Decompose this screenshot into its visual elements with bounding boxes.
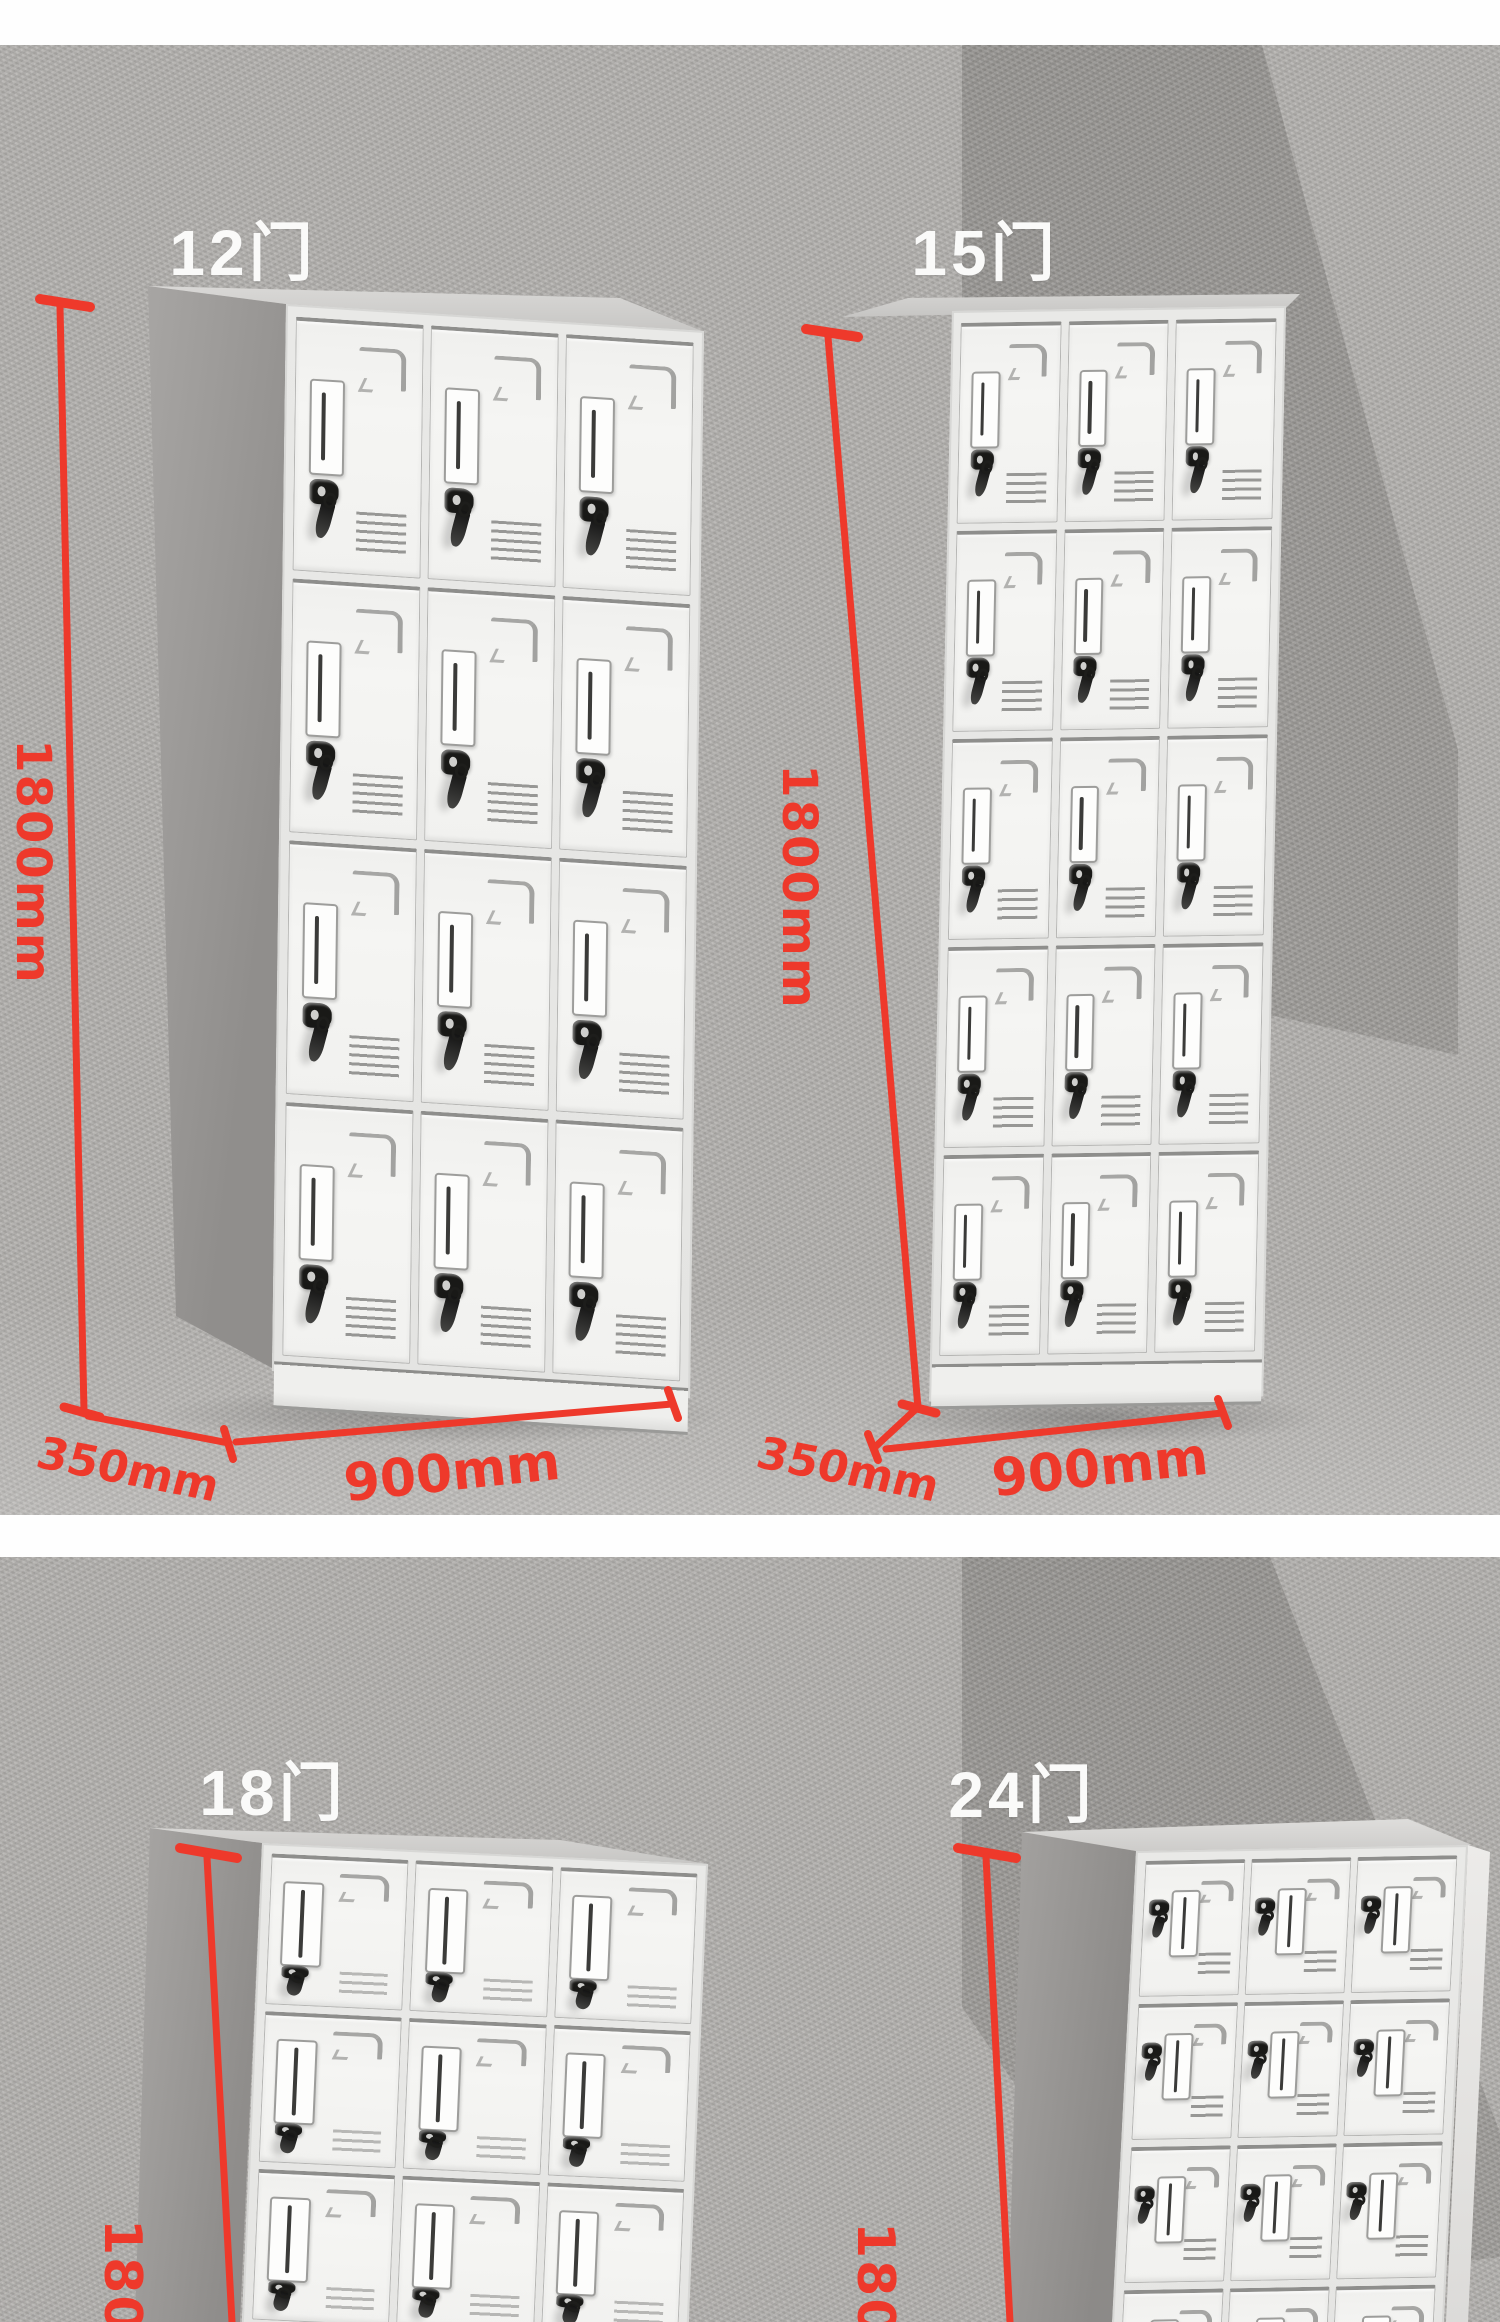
door-label-card-holder (1177, 784, 1207, 861)
door-label-card-holder (1065, 994, 1095, 1071)
door-label-card-holder (1367, 2172, 1399, 2239)
door-label-card-holder (305, 641, 342, 739)
door-label-card-holder (1374, 2029, 1406, 2096)
locker-door (952, 529, 1057, 732)
door-handle-cutout (356, 609, 403, 653)
locker12-width-label: 900mm (341, 1432, 563, 1514)
card-slot (442, 1897, 449, 1965)
card-slot (446, 1187, 451, 1255)
locker12-side-panel (148, 286, 288, 1370)
locker-door (1047, 1152, 1152, 1355)
door-handle-cutout (622, 888, 669, 932)
door-handle-cutout (494, 356, 541, 400)
door-keys (1256, 1914, 1271, 1937)
door-keys (1183, 672, 1201, 703)
door-handle-cutout (1405, 2020, 1439, 2042)
door-vents (1097, 1303, 1137, 1335)
door-vents (1002, 681, 1042, 713)
door-handle-cutout (1390, 2306, 1424, 2322)
door-label-card-holder (1168, 1200, 1198, 1277)
door-keys (1067, 1089, 1085, 1120)
door-handle-cutout (470, 2196, 521, 2224)
door-label-card-holder (1268, 2031, 1300, 2098)
door-vents (993, 1097, 1033, 1129)
locker-door (1230, 2143, 1337, 2281)
door-handle-cutout (349, 1132, 396, 1176)
door-keys (1063, 1297, 1081, 1328)
product-title-15door: 15门 (911, 202, 1058, 294)
locker-door (541, 2182, 685, 2322)
card-slot (449, 925, 454, 993)
locker15-plinth (931, 1359, 1262, 1409)
door-vents (626, 529, 677, 572)
door-handle-cutout (1009, 343, 1047, 377)
door-handle-cutout (1178, 2310, 1212, 2322)
door-label-card-holder (953, 1204, 983, 1281)
locker-door (948, 737, 1053, 940)
door-handle-cutout (1099, 1174, 1137, 1208)
card-slot (314, 916, 319, 984)
card-slot (1182, 1003, 1187, 1057)
door-label-card-holder (1359, 2316, 1391, 2322)
door-label-card-holder (1381, 1886, 1413, 1953)
door-label-card-holder (970, 371, 1000, 448)
product-title-18door: 18门 (199, 1742, 346, 1834)
door-handle-cutout (1112, 550, 1150, 584)
locker-door (1117, 2288, 1224, 2322)
middle-white-band (0, 1515, 1500, 1557)
door-keys (1143, 2059, 1158, 2082)
door-keys (575, 1041, 598, 1081)
door-vents (1110, 679, 1150, 711)
card-slot (587, 672, 592, 740)
door-vents (349, 1035, 400, 1078)
door-handle-cutout (359, 347, 406, 391)
locker-door (1343, 1998, 1450, 2136)
door-handle-cutout (1299, 2021, 1333, 2043)
door-handle-cutout (1200, 1880, 1234, 1902)
locker-door (1055, 736, 1160, 939)
door-label-card-holder (579, 396, 616, 494)
locker-door (259, 2011, 403, 2168)
door-keys (964, 883, 982, 914)
door-label-card-holder (440, 649, 477, 747)
door-label-card-holder (572, 920, 609, 1018)
door-keys (278, 2133, 298, 2155)
door-vents (487, 782, 538, 825)
door-vents (1101, 1095, 1141, 1127)
locker-door (552, 1119, 683, 1381)
door-keys (1076, 673, 1094, 704)
door-keys (1179, 880, 1197, 911)
door-keys (1249, 2057, 1264, 2080)
door-keys (959, 1091, 977, 1122)
door-vents (483, 1978, 533, 2002)
door-keys (1362, 1912, 1377, 1935)
door-vents (325, 2287, 375, 2311)
door-handle-cutout (1211, 964, 1249, 998)
card-slot (1178, 1211, 1183, 1265)
door-vents (1114, 471, 1154, 503)
card-slot (1378, 2180, 1384, 2232)
door-label-card-holder (1169, 1890, 1201, 1957)
locker-door (1351, 1855, 1458, 1993)
card-slot (1075, 1005, 1080, 1059)
locker-door (1139, 1859, 1246, 1997)
locker15-depth-label: 350mm (751, 1428, 944, 1512)
door-handle-cutout (491, 618, 538, 662)
door-keys (444, 771, 467, 811)
door-label-card-holder (568, 1182, 605, 1280)
door-label-card-holder (309, 379, 346, 477)
door-vents (1217, 677, 1257, 709)
door-vents (615, 1314, 666, 1357)
door-keys (1150, 1916, 1165, 1939)
door-keys (972, 467, 990, 498)
door-handle-cutout (1306, 1878, 1340, 1900)
card-slot (456, 401, 461, 469)
door-label-card-holder (1162, 2033, 1194, 2100)
door-handle-cutout (1005, 551, 1043, 585)
door-handle-cutout (332, 2031, 383, 2059)
door-vents (619, 1052, 670, 1095)
locker12-depth-label: 350mm (31, 1428, 224, 1512)
card-slot (1279, 2039, 1285, 2091)
card-slot (1287, 1895, 1293, 1947)
top-white-band (0, 0, 1500, 45)
card-slot (1083, 589, 1088, 643)
card-slot (1070, 1213, 1075, 1267)
door-vents (1402, 2092, 1436, 2117)
door-vents (491, 520, 542, 563)
locker-door (410, 1860, 554, 2017)
door-keys (447, 509, 470, 549)
door-label-card-holder (267, 2197, 311, 2283)
door-handle-cutout (628, 1887, 679, 1915)
door-vents (1289, 2237, 1323, 2262)
door-keys (1175, 1088, 1193, 1119)
locker-door (1245, 1857, 1352, 1995)
door-keys (572, 1303, 595, 1343)
locker15-height-label: 1800mm (771, 764, 827, 1010)
door-handle-cutout (326, 2189, 377, 2217)
door-keys (968, 675, 986, 706)
door-keys (574, 1989, 594, 2011)
door-handle-cutout (1000, 759, 1038, 793)
locker-door (556, 858, 687, 1120)
product-title-12door: 12门 (169, 202, 316, 294)
door-handle-cutout (1292, 2165, 1326, 2187)
door-label-card-holder (1172, 992, 1202, 1069)
door-vents (1204, 1302, 1244, 1334)
door-label-card-holder (575, 658, 612, 756)
door-keys (285, 1975, 305, 1997)
locker18-height-label: 1800mm (92, 2219, 152, 2322)
door-handle-cutout (991, 1175, 1029, 1209)
door-label-card-holder (1069, 786, 1099, 863)
door-label-card-holder (418, 2046, 462, 2132)
locker12-front (272, 304, 704, 1398)
card-slot (1079, 797, 1084, 851)
door-vents (998, 889, 1038, 921)
door-vents (1006, 473, 1046, 505)
card-slot (298, 1890, 305, 1958)
door-handle-cutout (352, 871, 399, 915)
door-vents (356, 511, 407, 554)
door-keys (1071, 881, 1089, 912)
card-slot (581, 1195, 586, 1263)
door-keys (955, 1299, 973, 1330)
door-keys (1355, 2055, 1370, 2078)
door-vents (1209, 1094, 1249, 1126)
locker-door (286, 840, 417, 1102)
locker-door (421, 849, 552, 1111)
card-slot (311, 1178, 316, 1246)
locker-door (428, 325, 559, 587)
card-slot (1393, 1893, 1399, 1945)
locker-door (1131, 2002, 1238, 2140)
door-handle-cutout (1103, 966, 1141, 1000)
door-vents (1105, 887, 1145, 919)
locker-door (293, 317, 424, 579)
locker-door (1124, 2145, 1231, 2283)
door-vents (1409, 1949, 1443, 1974)
door-label-card-holder (1155, 2176, 1187, 2243)
scene-bottom-lockers: 18门 24门 1800mm (0, 1557, 1500, 2322)
door-vents (345, 1297, 396, 1340)
scene-top-lockers: 12门 15门 (0, 45, 1500, 1515)
door-keys (440, 1033, 463, 1073)
door-vents (332, 2129, 382, 2153)
door-label-card-holder (1261, 2174, 1293, 2241)
locker12-height-label: 1800mm (5, 739, 61, 985)
door-keys (416, 2297, 436, 2319)
door-keys (1080, 465, 1098, 496)
door-handle-cutout (629, 365, 676, 409)
door-vents (480, 1305, 531, 1348)
door-label-card-holder (555, 2210, 599, 2296)
door-handle-cutout (621, 2045, 672, 2073)
door-label-card-holder (433, 1173, 470, 1271)
door-handle-cutout (339, 1874, 390, 1902)
card-slot (1181, 1897, 1187, 1949)
door-label-card-holder (302, 902, 339, 1000)
door-keys (1188, 464, 1206, 495)
door-handle-cutout (1186, 2167, 1220, 2189)
card-slot (435, 2054, 442, 2122)
locker15-front (929, 306, 1286, 1401)
card-slot (1191, 587, 1196, 641)
locker-door (1223, 2287, 1330, 2322)
locker-door (403, 2018, 547, 2175)
door-label-card-holder (562, 2053, 606, 2139)
door-handle-cutout (1220, 548, 1258, 582)
door-keys (302, 1286, 325, 1326)
door-keys (1170, 1296, 1188, 1327)
door-vents (476, 2136, 526, 2160)
card-slot (980, 382, 985, 436)
door-vents (1190, 2096, 1224, 2121)
locker-door (1163, 734, 1268, 937)
door-keys (305, 1024, 328, 1064)
locker-door (282, 1102, 413, 1364)
door-vents (614, 2301, 664, 2322)
door-label-card-holder (1185, 368, 1215, 445)
locker-door (265, 1853, 409, 2010)
door-vents (622, 791, 673, 834)
door-handle-cutout (487, 879, 534, 923)
card-slot (1272, 2182, 1278, 2234)
card-slot (967, 1006, 972, 1060)
locker-door (559, 596, 690, 858)
locker-door (417, 1111, 548, 1373)
card-slot (1166, 2184, 1172, 2236)
locker-door (1051, 944, 1156, 1147)
door-label-card-holder (1073, 578, 1103, 655)
door-handle-cutout (1108, 758, 1146, 792)
card-slot (452, 663, 457, 731)
card-slot (1195, 379, 1200, 433)
card-slot (1088, 381, 1093, 435)
door-handle-cutout (1193, 2023, 1227, 2045)
locker-door (554, 1867, 698, 2024)
card-slot (584, 934, 589, 1002)
door-label-card-holder (1275, 1888, 1307, 1955)
door-label-card-holder (411, 2204, 455, 2290)
card-slot (591, 410, 596, 478)
locker-door (957, 321, 1062, 524)
door-label-card-holder (966, 579, 996, 656)
locker-door (563, 334, 694, 596)
door-label-card-holder (273, 2039, 317, 2125)
door-label-card-holder (280, 1881, 324, 1967)
door-keys (1136, 2202, 1151, 2225)
door-vents (989, 1305, 1029, 1337)
door-vents (1222, 469, 1262, 501)
door-vents (627, 1985, 677, 2009)
door-label-card-holder (957, 996, 987, 1073)
door-handle-cutout (484, 1141, 531, 1185)
door-label-card-holder (1060, 1202, 1090, 1279)
card-slot (285, 2205, 292, 2273)
door-label-card-holder (444, 388, 481, 486)
locker-door (252, 2169, 396, 2322)
door-keys (429, 1982, 449, 2004)
card-slot (963, 1215, 968, 1269)
locker-door (547, 2025, 691, 2182)
card-slot (971, 798, 976, 852)
door-vents (484, 1044, 535, 1087)
door-vents (339, 1972, 389, 1996)
door-handle-cutout (1117, 342, 1155, 376)
locker-door (1060, 528, 1165, 731)
door-handle-cutout (477, 2038, 528, 2066)
card-slot (291, 2047, 298, 2115)
door-handle-cutout (619, 1150, 666, 1194)
door-handle-cutout (626, 626, 673, 670)
locker-door (939, 1154, 1044, 1357)
locker-door (1172, 318, 1277, 521)
door-vents (1183, 2239, 1217, 2264)
card-slot (1187, 795, 1192, 849)
card-slot (429, 2212, 436, 2280)
door-handle-cutout (1207, 1172, 1245, 1206)
door-keys (309, 762, 332, 802)
locker-door (1237, 2000, 1344, 2138)
door-handle-cutout (1398, 2163, 1432, 2185)
door-vents (470, 2294, 520, 2318)
door-label-card-holder (961, 787, 991, 864)
card-slot (580, 2061, 587, 2129)
door-keys (272, 2290, 292, 2312)
door-vents (1395, 2235, 1429, 2260)
product-title-24door: 24门 (948, 1744, 1095, 1836)
door-handle-cutout (996, 967, 1034, 1001)
card-slot (586, 1903, 593, 1971)
door-keys (582, 518, 605, 558)
door-label-card-holder (298, 1164, 335, 1262)
card-slot (317, 654, 322, 722)
door-handle-cutout (1224, 340, 1262, 374)
door-handle-cutout (1412, 1876, 1446, 1898)
locker-door (1159, 942, 1264, 1145)
locker-door (1336, 2141, 1443, 2279)
card-slot (573, 2219, 580, 2287)
locker24-height-label: 1800mm (845, 2222, 905, 2322)
locker15-width-label: 900mm (989, 1427, 1211, 1509)
door-vents (1303, 1950, 1337, 1975)
locker-door (1154, 1150, 1259, 1353)
door-keys (1348, 2199, 1363, 2222)
card-slot (1173, 2040, 1179, 2092)
door-keys (423, 2140, 443, 2162)
door-vents (1296, 2094, 1330, 2119)
card-slot (321, 393, 326, 461)
door-label-card-holder (1181, 576, 1211, 653)
door-vents (1197, 1952, 1231, 1977)
locker-door (1329, 2285, 1436, 2322)
locker-door (396, 2176, 540, 2322)
door-handle-cutout (614, 2203, 665, 2231)
door-keys (567, 2146, 587, 2168)
locker-door (1064, 320, 1169, 523)
locker-door (943, 946, 1048, 1149)
door-vents (352, 773, 403, 816)
door-label-card-holder (424, 1888, 468, 1974)
card-slot (976, 590, 981, 644)
door-vents (621, 2143, 671, 2167)
locker-door (424, 587, 555, 849)
door-handle-cutout (483, 1881, 534, 1909)
card-slot (1385, 2037, 1391, 2089)
door-keys (1242, 2201, 1257, 2224)
door-label-card-holder (1253, 2318, 1285, 2322)
door-label-card-holder (569, 1895, 613, 1981)
product-dimension-sheet: 12门 15门 (0, 0, 1500, 2322)
locker-door (289, 578, 420, 840)
locker18-front (235, 1843, 708, 2322)
door-vents (1213, 885, 1253, 917)
door-keys (437, 1295, 460, 1335)
locker24-front (1106, 1845, 1468, 2322)
locker-door (1168, 526, 1273, 729)
door-label-card-holder (437, 911, 474, 1009)
door-handle-cutout (1284, 2308, 1318, 2322)
door-label-card-holder (1078, 370, 1108, 447)
door-keys (312, 500, 335, 540)
door-keys (579, 780, 602, 820)
door-handle-cutout (1216, 756, 1254, 790)
